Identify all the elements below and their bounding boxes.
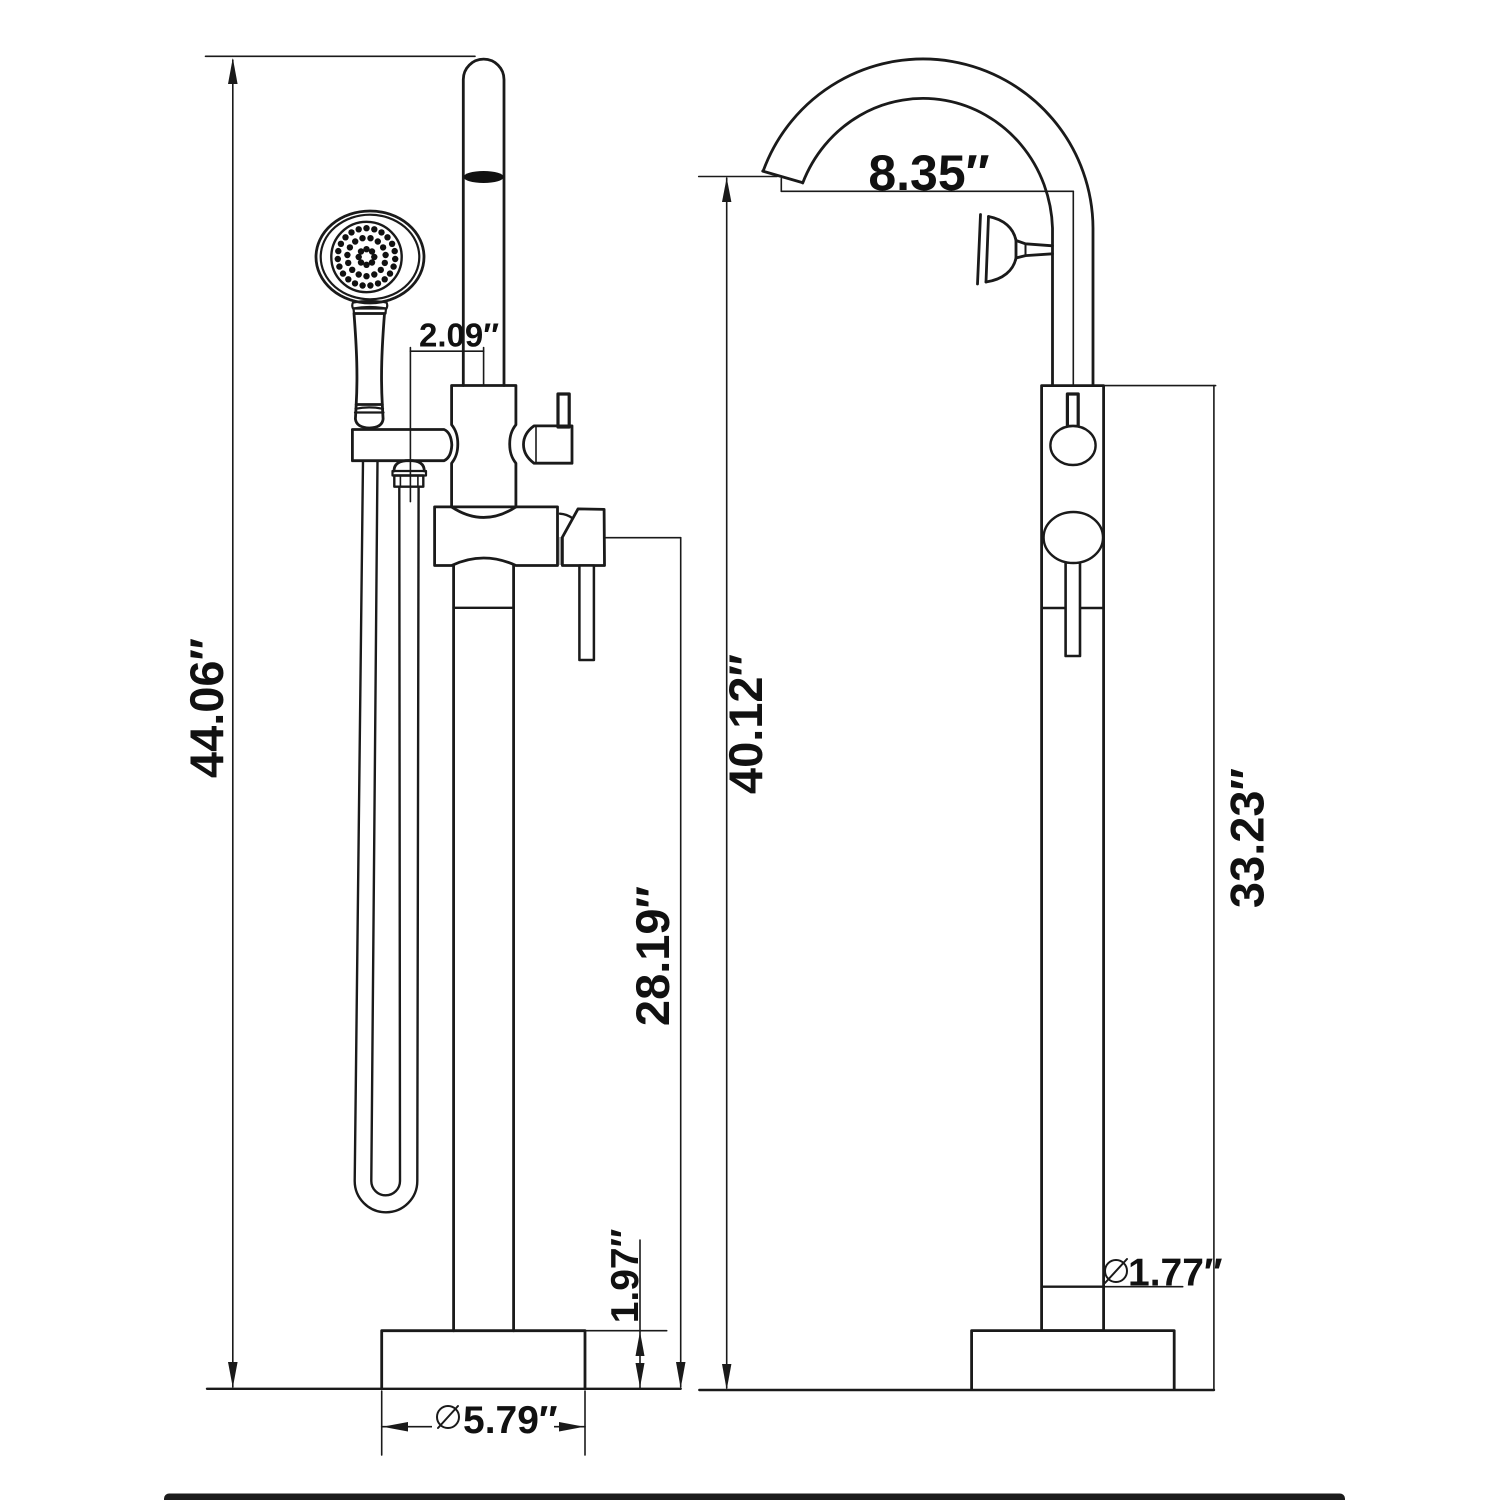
svg-text:44.06″: 44.06″ [180,638,233,778]
svg-text:33.23″: 33.23″ [1220,768,1273,908]
svg-text:5.79″: 5.79″ [463,1399,558,1442]
svg-text:1.77″: 1.77″ [1128,1251,1223,1294]
svg-text:2.09″: 2.09″ [419,317,499,354]
svg-text:8.35″: 8.35″ [868,145,989,201]
svg-text:28.19″: 28.19″ [626,886,679,1026]
svg-text:1.97″: 1.97″ [604,1229,647,1324]
svg-text:40.12″: 40.12″ [719,654,772,794]
